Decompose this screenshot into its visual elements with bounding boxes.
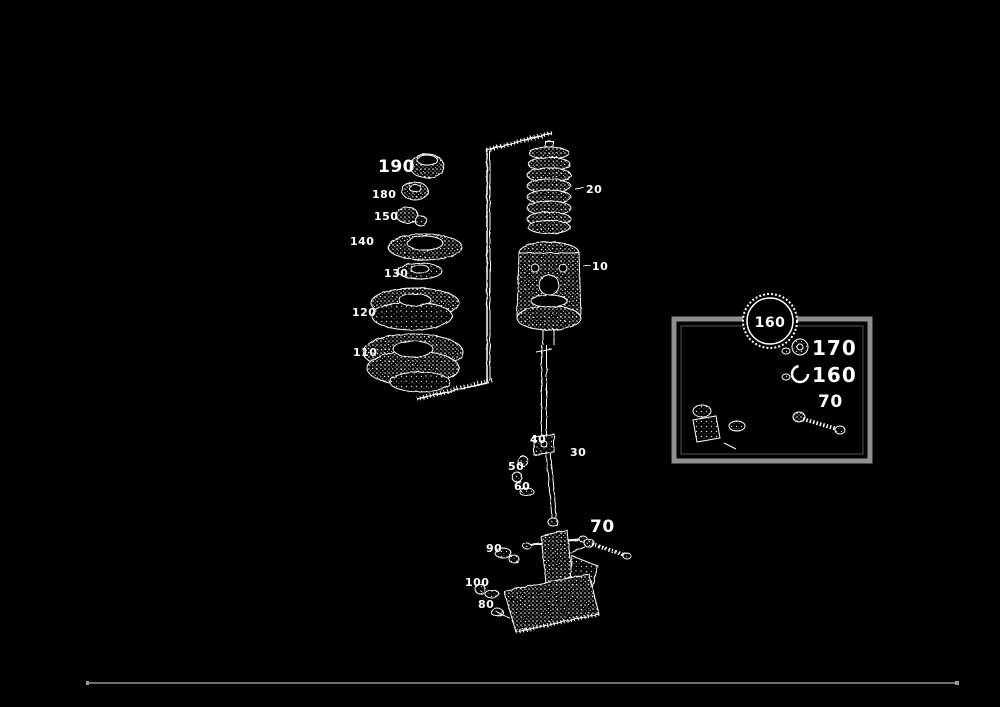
inset-badge-label: 160 <box>755 315 786 331</box>
callout-canister: 10 <box>592 260 608 273</box>
callout-washer: 60 <box>514 480 530 493</box>
part-disc <box>388 234 462 260</box>
valve-canister <box>517 242 590 330</box>
part-cap <box>410 154 444 178</box>
inset-row-label-170: 170 <box>812 336 857 360</box>
parts-diagram: 160 170 160 <box>0 0 1000 707</box>
footer-rule-left-tick <box>86 681 89 685</box>
callout-180: 180 <box>372 188 396 201</box>
callout-150: 150 <box>374 210 398 223</box>
inset-badge: 160 <box>743 294 797 348</box>
callout-120: 120 <box>352 306 376 319</box>
inset-row-label-160: 160 <box>812 363 857 387</box>
callout-bolt-70: 70 <box>590 517 615 537</box>
callout-bracket-left: 100 <box>465 576 489 589</box>
callout-spring: 20 <box>586 183 602 196</box>
callout-bracket-lower: 80 <box>478 598 494 611</box>
footer-rule-right-tick <box>955 681 959 685</box>
callout-140: 140 <box>350 235 374 248</box>
callout-130: 130 <box>384 267 408 280</box>
diagram-page: 160 170 160 <box>0 0 1000 707</box>
callout-110: 110 <box>353 346 377 359</box>
callout-clevis: 40 <box>530 433 546 446</box>
callout-link: 30 <box>570 446 586 459</box>
inset-bolt-label: 70 <box>818 392 843 412</box>
callout-190: 190 <box>378 157 415 177</box>
part-drum-upper <box>371 288 459 330</box>
part-nut <box>402 182 428 200</box>
callout-pin: 50 <box>508 460 524 473</box>
callout-bracket-pin: 90 <box>486 542 502 555</box>
